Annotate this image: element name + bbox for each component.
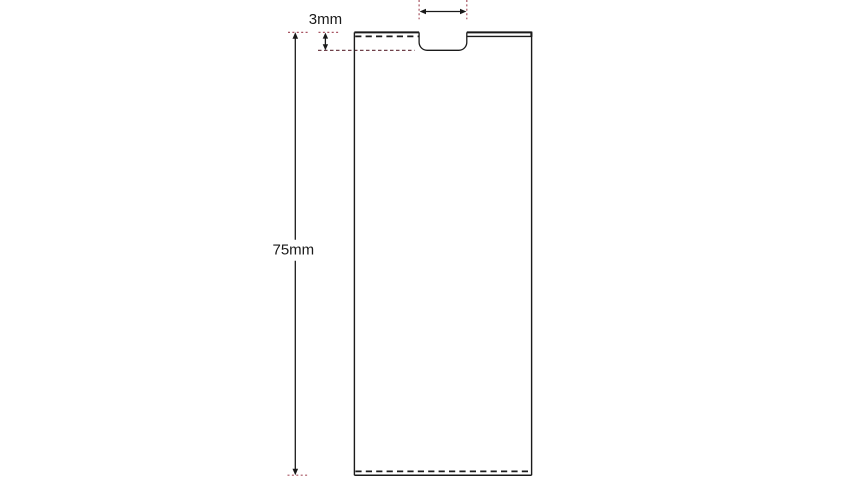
svg-text:75mm: 75mm (273, 242, 315, 259)
svg-text:3mm: 3mm (309, 11, 342, 28)
